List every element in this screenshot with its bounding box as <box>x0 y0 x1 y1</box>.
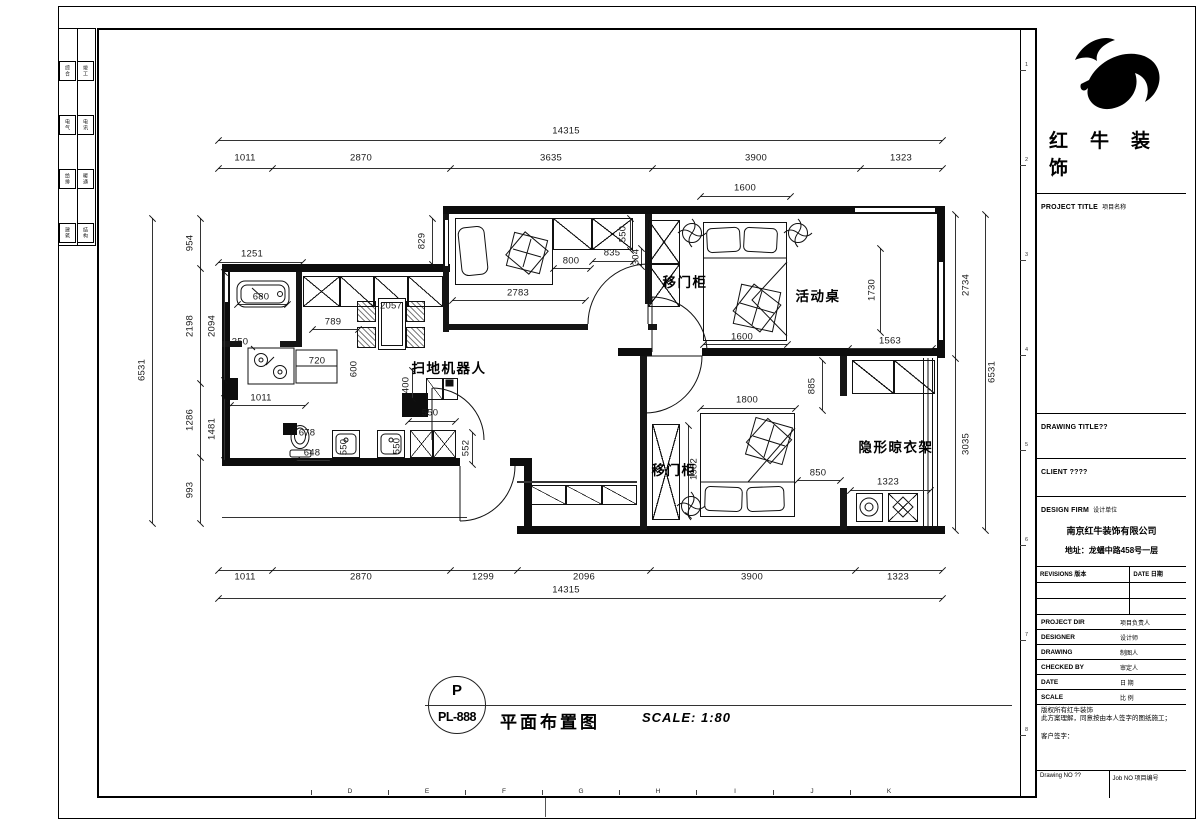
project-title-label-en: PROJECT TITLE <box>1041 204 1098 211</box>
signature-label-en: SCALE <box>1041 694 1120 701</box>
room-label: 隐形晾衣架 <box>859 436 934 456</box>
drawing-title-section: DRAWING TITLE?? <box>1037 413 1186 458</box>
room-label: 扫地机器人 <box>412 357 487 377</box>
dimension-line <box>152 218 153 523</box>
bed-double <box>700 413 795 517</box>
grid-tick <box>542 790 543 795</box>
firm-name: 南京红牛装饰有限公司 <box>1041 524 1182 537</box>
partition-wall <box>296 272 302 342</box>
grid-tick <box>1020 260 1026 261</box>
chair <box>357 301 376 322</box>
copyright-line2: 此方案理解，同意按由本人签字的图纸施工； <box>1041 715 1182 723</box>
window <box>855 207 935 213</box>
dimension-tick <box>787 193 794 200</box>
dimension-line <box>230 405 305 406</box>
grid-letter: H <box>656 788 661 795</box>
dimension-line <box>703 344 787 345</box>
grid-tick <box>1020 735 1026 736</box>
robot-vacuum <box>443 378 458 400</box>
signature-row: DATE日 期 <box>1037 674 1186 689</box>
firm-address: 地址：龙蟠中路458号一层 <box>1041 545 1182 556</box>
signature-rows: PROJECT DIR项目负责人DESIGNER设计师DRAWING制图人CHE… <box>1037 614 1186 704</box>
grid-letter: J <box>810 788 813 795</box>
dimension-line <box>592 261 633 262</box>
dimension-text: 400 <box>401 377 412 393</box>
drawing-no: Drawing NO ?? <box>1037 771 1109 798</box>
dimension-line <box>200 218 201 523</box>
cabinet-hatched <box>553 218 592 250</box>
grid-tick <box>1020 545 1026 546</box>
grid-tick <box>1020 450 1026 451</box>
dimension-text: 993 <box>185 482 196 498</box>
cabinet-crossed <box>410 430 433 458</box>
dimension-tick <box>302 402 309 409</box>
design-firm-label-en: DESIGN FIRM <box>1041 507 1089 514</box>
dimension-line <box>218 598 942 599</box>
dimension-line <box>224 398 225 460</box>
room-label: 移门柜 <box>663 271 708 291</box>
wall-segment <box>702 348 945 356</box>
room-label: 移门柜 <box>652 459 697 479</box>
revision-row-empty <box>1037 582 1186 598</box>
company-logo-cell: 红牛装饰 <box>1037 28 1186 193</box>
dimension-text: 648 <box>304 448 320 459</box>
dimension-text: 835 <box>604 248 620 259</box>
grid-number: 8 <box>1025 727 1028 733</box>
dimension-text: 1286 <box>185 409 196 431</box>
grid-letter: D <box>348 788 353 795</box>
signature-row: PROJECT DIR项目负责人 <box>1037 614 1186 629</box>
dimension-text: 2734 <box>961 274 972 296</box>
dimension-tick <box>837 477 844 484</box>
dimension-tick <box>587 265 594 272</box>
signature-label-en: DESIGNER <box>1041 634 1120 641</box>
dimension-text: 600 <box>349 361 360 377</box>
window <box>938 262 944 340</box>
revision-row-empty <box>1037 598 1186 614</box>
wall-segment <box>222 458 460 466</box>
dimension-text: 3035 <box>961 433 972 455</box>
customer-sign-label: 客户签字： <box>1041 733 1182 741</box>
dimension-tick <box>452 418 459 425</box>
signature-label-cn: 项目负责人 <box>1120 618 1150 627</box>
figure-mark-letter: P <box>429 677 485 704</box>
dimension-text: 14315 <box>552 585 579 596</box>
dimension-tick <box>792 405 799 412</box>
figure-scale: SCALE: 1:80 <box>642 710 731 725</box>
dimension-line <box>955 214 956 530</box>
dimension-text: 350 <box>232 337 248 348</box>
title-block: 红牛装饰 PROJECT TITLE项目名称 DRAWING TITLE?? C… <box>1035 28 1186 798</box>
dimension-line <box>700 196 790 197</box>
dimension-tick <box>582 297 589 304</box>
wall-segment <box>283 423 297 435</box>
wall-segment <box>517 526 945 534</box>
revision-date-cell <box>1129 583 1186 598</box>
dimension-text: 2096 <box>573 572 595 583</box>
partition-wall <box>443 324 588 330</box>
dimension-line <box>848 348 932 349</box>
partition-wall <box>840 488 847 530</box>
partition-wall <box>648 324 657 330</box>
revisions-header: REVISIONS 版本 DATE 日期 <box>1037 566 1186 582</box>
project-title-section: PROJECT TITLE项目名称 <box>1037 193 1186 413</box>
revision-date-cell <box>1129 599 1186 614</box>
copyright-line1: 版权所有红牛装饰 <box>1041 707 1182 715</box>
figure-mark: P PL-888 <box>428 676 486 734</box>
dimension-tick <box>784 341 791 348</box>
dimension-text: 678 <box>299 428 315 439</box>
dimension-text: 720 <box>309 356 325 367</box>
dimension-text: 1323 <box>877 477 899 488</box>
cabinet-hatched <box>566 485 602 505</box>
client-section: CLIENT ???? <box>1037 458 1186 496</box>
dimension-line <box>472 432 473 464</box>
dimension-text: 1323 <box>887 572 909 583</box>
drawing-sheet: { "sheet": { "grid_letters": ["D","E","F… <box>0 0 1200 824</box>
signature-row: DRAWING制图人 <box>1037 644 1186 659</box>
dimension-text: 1251 <box>241 249 263 260</box>
dimension-tick <box>939 595 946 602</box>
dimension-line <box>880 248 881 332</box>
grid-tick <box>1020 70 1026 71</box>
dimension-line <box>218 262 302 263</box>
grid-tick <box>1020 355 1026 356</box>
signature-label-en: DRAWING <box>1041 649 1120 656</box>
dimension-text: 885 <box>807 378 818 394</box>
dimension-tick <box>284 301 291 308</box>
dimension-text: 1299 <box>472 572 494 583</box>
signature-label-cn: 日 期 <box>1120 678 1134 687</box>
dimension-text: 2783 <box>507 288 529 299</box>
grid-letter: G <box>578 788 583 795</box>
chair <box>357 327 376 348</box>
design-firm-section: DESIGN FIRM设计单位 南京红牛装饰有限公司 地址：龙蟠中路458号一层 <box>1037 496 1186 566</box>
partition-wall <box>280 341 302 347</box>
dimension-line <box>218 168 942 169</box>
copyright-section: 版权所有红牛装饰 此方案理解，同意按由本人签字的图纸施工； 客户签字： <box>1037 704 1186 770</box>
dimension-text: 552 <box>461 440 472 456</box>
cabinet-hatched <box>602 485 637 505</box>
grid-number: 7 <box>1025 632 1028 638</box>
dimension-line <box>822 360 823 410</box>
grid-tick <box>1020 640 1026 641</box>
drawing-number-row: Drawing NO ?? Job NO 项目编号 <box>1037 770 1186 798</box>
grid-number: 3 <box>1025 252 1028 258</box>
cabinet-crossed <box>303 276 340 307</box>
bed-single <box>455 218 553 285</box>
dimension-line <box>797 480 840 481</box>
grid-letter: F <box>502 788 506 795</box>
dimension-text: 3635 <box>540 153 562 164</box>
dimension-text: 550 <box>618 226 629 242</box>
partition-wall <box>640 356 647 530</box>
grid-number: 6 <box>1025 537 1028 543</box>
signature-label-en: CHECKED BY <box>1041 664 1120 671</box>
dimension-text: 680 <box>253 292 269 303</box>
figure-title-line <box>425 705 1012 706</box>
chair <box>406 327 425 348</box>
dimension-text: 829 <box>417 233 428 249</box>
wall-segment <box>618 348 652 356</box>
dimension-text: 850 <box>810 468 826 479</box>
figure-title: 平面布置图 <box>500 708 600 733</box>
dimension-text: 1600 <box>731 332 753 343</box>
dimension-line <box>432 218 433 264</box>
dimension-text: 1730 <box>867 279 878 301</box>
grid-tick <box>696 790 697 795</box>
revisions-label: REVISIONS 版本 <box>1037 567 1129 582</box>
grid-letter: K <box>887 788 891 795</box>
date-column-label: DATE 日期 <box>1129 567 1186 582</box>
cabinet-crossed <box>648 220 680 264</box>
grid-tick <box>850 790 851 795</box>
grid-tick <box>773 790 774 795</box>
dimension-text: 1600 <box>734 183 756 194</box>
dimension-text: 14315 <box>552 126 579 137</box>
signature-row: CHECKED BY审定人 <box>1037 659 1186 674</box>
signature-label-cn: 比 例 <box>1120 693 1134 702</box>
dimension-text: 2870 <box>350 153 372 164</box>
floor-line <box>517 481 637 483</box>
chair <box>406 301 425 322</box>
dimension-text: 2094 <box>207 315 218 337</box>
signature-label-cn: 制图人 <box>1120 648 1138 657</box>
dimension-text: 3900 <box>745 153 767 164</box>
signature-label-en: DATE <box>1041 679 1120 686</box>
grid-tick <box>1020 165 1026 166</box>
wall-segment <box>222 264 450 272</box>
dimension-text: 6531 <box>987 361 998 383</box>
dimension-text: 2057 <box>380 301 402 312</box>
room-label: 活动桌 <box>796 285 841 305</box>
grid-number: 5 <box>1025 442 1028 448</box>
cabinet-crossed <box>888 493 918 522</box>
signature-label-cn: 设计师 <box>1120 633 1138 642</box>
dimension-line <box>700 408 795 409</box>
grid-number: 4 <box>1025 347 1028 353</box>
drawing-title-label: DRAWING TITLE?? <box>1041 424 1108 431</box>
dimension-text: 550 <box>392 438 403 454</box>
floor-plan: 1431510112870363539001323160095421981286… <box>0 0 1200 824</box>
dimension-text: 2870 <box>350 572 372 583</box>
dimension-line <box>408 421 455 422</box>
signature-label-cn: 审定人 <box>1120 663 1138 672</box>
rednew-bull-logo <box>1037 28 1188 128</box>
dimension-tick <box>939 165 946 172</box>
dimension-line <box>850 490 930 491</box>
grid-tick <box>465 790 466 795</box>
dimension-line <box>224 272 225 380</box>
cabinet-crossed <box>433 430 456 458</box>
dimension-text: 1800 <box>736 395 758 406</box>
signature-label-en: PROJECT DIR <box>1041 619 1120 626</box>
dimension-text: 1563 <box>879 336 901 347</box>
dimension-line <box>218 140 942 141</box>
dimension-text: 1011 <box>234 153 255 164</box>
dimension-line <box>452 300 585 301</box>
grid-letter: E <box>425 788 429 795</box>
dimension-tick <box>939 137 946 144</box>
bed-double <box>703 222 787 341</box>
job-no: Job NO 项目编号 <box>1109 771 1186 798</box>
grid-tick <box>388 790 389 795</box>
floor-line <box>222 517 467 518</box>
dimension-line <box>553 268 590 269</box>
signature-row: SCALE比 例 <box>1037 689 1186 704</box>
signature-row: DESIGNER设计师 <box>1037 629 1186 644</box>
grid-tick <box>311 790 312 795</box>
design-firm-label-cn: 设计单位 <box>1093 508 1117 514</box>
dimension-line <box>296 460 330 461</box>
grid-tick <box>619 790 620 795</box>
dimension-text: 2198 <box>185 315 196 337</box>
dimension-text: 800 <box>563 256 579 267</box>
company-name: 红牛装饰 <box>1049 128 1179 182</box>
cabinet-hatched <box>852 360 894 394</box>
window <box>444 220 449 266</box>
dimension-text: 1481 <box>207 418 218 440</box>
figure-mark-number: PL-888 <box>429 704 485 730</box>
dimension-text: 1011 <box>250 393 271 404</box>
dimension-tick <box>939 567 946 574</box>
project-title-label-cn: 项目名称 <box>1102 205 1126 211</box>
dimension-text: 1323 <box>890 153 912 164</box>
grid-letter: I <box>734 788 736 795</box>
dimension-text: 3900 <box>741 572 763 583</box>
cabinet-hatched <box>530 485 566 505</box>
client-label: CLIENT ???? <box>1041 469 1088 476</box>
dimension-line <box>630 218 631 250</box>
partition-wall <box>840 356 847 396</box>
cabinet-hatched <box>426 378 443 400</box>
dimension-text: 1011 <box>234 572 255 583</box>
dimension-text: 954 <box>185 235 196 251</box>
dimension-text: 550 <box>339 439 350 455</box>
dimension-text: 550 <box>422 408 438 419</box>
dimension-text: 304 <box>631 249 642 265</box>
cabinet-hatched <box>894 360 935 394</box>
dimension-line <box>237 304 287 305</box>
dimension-line <box>312 329 358 330</box>
grid-number: 2 <box>1025 157 1028 163</box>
grid-number: 1 <box>1025 62 1028 68</box>
dimension-text: 6531 <box>137 359 148 381</box>
washing-machine <box>856 493 883 522</box>
dimension-text: 789 <box>325 317 341 328</box>
